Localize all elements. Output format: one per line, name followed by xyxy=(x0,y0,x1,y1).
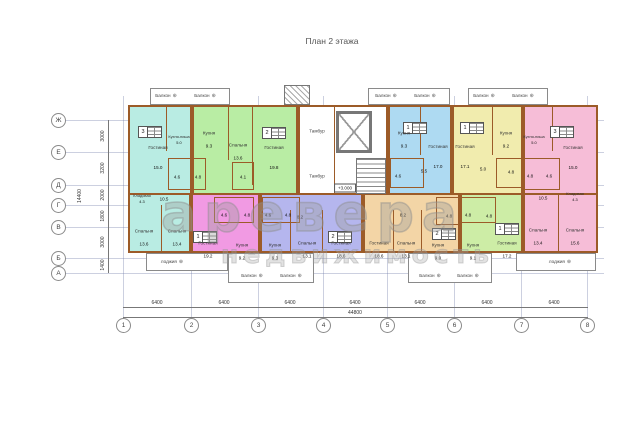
apartment-stamp: 3 xyxy=(550,126,574,138)
room-area: 9.3 xyxy=(401,144,407,149)
axis-number: 1 xyxy=(116,318,131,333)
room-area: 15.6 xyxy=(571,241,580,246)
room-area: 5.5 xyxy=(421,169,427,174)
stamp-number: 3 xyxy=(139,127,148,137)
balcony-text: Балкон xyxy=(155,93,170,98)
balcony-label: Балкон⊕ xyxy=(414,93,436,99)
balcony-mark-icon: ⊕ xyxy=(437,273,441,279)
loggia-label: лоджия⊕ xyxy=(549,259,571,265)
room-name: Гостиная xyxy=(264,146,283,151)
stamp-grid xyxy=(272,128,285,138)
room-label: Гостиная19.8 xyxy=(264,146,283,170)
left-dim: 1400 xyxy=(100,259,106,270)
axis-number: 7 xyxy=(514,318,529,333)
loggia-text: лоджия xyxy=(549,259,565,264)
span-dim: 6400 xyxy=(481,300,492,306)
stamp-grid xyxy=(470,123,483,133)
roof-shaft-hatch xyxy=(284,85,310,105)
room-label: Гостиная15.0 xyxy=(563,146,582,170)
room-area: 4.6 xyxy=(395,174,401,179)
axis-number: 8 xyxy=(580,318,595,333)
partition-wall xyxy=(334,105,335,195)
room-area: 4.6 xyxy=(174,175,180,180)
floor-plan-page: План 2 этажа Ж Е Д Г В Б А 1 2 3 4 5 6 7… xyxy=(0,0,622,440)
balcony-label: Балкон⊕ xyxy=(512,93,534,99)
room-area: 4.8 xyxy=(527,174,533,179)
room-area: 4.8 xyxy=(195,175,201,180)
stamp-number: 2 xyxy=(263,128,272,138)
balcony-text: Балкон xyxy=(241,273,256,278)
balcony-text: Балкон xyxy=(414,93,429,98)
partition-wall xyxy=(492,105,493,155)
span-dim: 6400 xyxy=(284,300,295,306)
loggia-label: лоджия⊕ xyxy=(161,259,183,265)
balcony-label: Балкон⊕ xyxy=(457,273,479,279)
balcony-mark-icon: ⊕ xyxy=(298,273,302,279)
room-label: Гостиная15.0 xyxy=(148,146,167,170)
span-dim: 6400 xyxy=(151,300,162,306)
dimension-line xyxy=(123,307,588,308)
axis-number: 5 xyxy=(380,318,395,333)
room-label: Кухня9.3 xyxy=(398,131,410,148)
axis-letter: Е xyxy=(51,145,66,160)
span-dim: 6400 xyxy=(414,300,425,306)
room-label: Спальня13.6 xyxy=(229,143,247,160)
room-area: 10.5 xyxy=(539,196,548,201)
room-name: Спальня xyxy=(529,228,547,233)
balcony-label: Балкон⊕ xyxy=(375,93,397,99)
room-area: 13.6 xyxy=(234,156,243,161)
watermark-line1: аревера xyxy=(98,184,528,244)
axis-letter: Ж xyxy=(51,113,66,128)
room-label: Спальня15.6 xyxy=(566,228,584,245)
room-label: Гостиная17.1 xyxy=(455,145,474,169)
axis-number: 2 xyxy=(184,318,199,333)
room-name: Спальня xyxy=(566,228,584,233)
balcony-mark-icon: ⊕ xyxy=(179,259,183,265)
room-area: 5.0 xyxy=(176,141,181,145)
axis-letter: Г xyxy=(51,198,66,213)
balcony-mark-icon: ⊕ xyxy=(491,93,495,99)
room-label: Гостиная17.0 xyxy=(428,145,447,169)
room-area: 4.8 xyxy=(508,170,514,175)
loggia-text: лоджия xyxy=(161,259,177,264)
stamp-grid xyxy=(560,127,573,137)
balcony-mark-icon: ⊕ xyxy=(567,259,571,265)
room-area: 9.2 xyxy=(503,144,509,149)
room-label: Кухня9.2 xyxy=(500,131,512,148)
balcony-mark-icon: ⊕ xyxy=(393,93,397,99)
balcony-label: Балкон⊕ xyxy=(419,273,441,279)
balcony-mark-icon: ⊕ xyxy=(432,93,436,99)
left-total-dim: 14400 xyxy=(77,189,83,203)
balcony-text: Балкон xyxy=(194,93,209,98)
span-dim: 6400 xyxy=(349,300,360,306)
room-name: Гостиная xyxy=(455,145,474,150)
span-dim: 6400 xyxy=(548,300,559,306)
room-area: 5.0 xyxy=(531,141,536,145)
balcony-text: Балкон xyxy=(280,273,295,278)
tambour-label: Тамбур xyxy=(309,129,325,134)
room-area: 17.1 xyxy=(461,165,470,170)
room-label: Кладовая4.3 xyxy=(566,192,583,202)
partition-wall xyxy=(558,195,559,253)
room-area: 15.0 xyxy=(154,166,163,171)
room-name: Кухня-ниша xyxy=(168,135,189,139)
room-label: Кухня9.3 xyxy=(203,131,215,148)
elevator-shaft xyxy=(336,111,372,153)
room-area: 13.4 xyxy=(534,241,543,246)
axis-letter: В xyxy=(51,220,66,235)
left-dim: 3200 xyxy=(100,162,106,173)
room-name: Кухня xyxy=(203,131,215,136)
room-area: 17.0 xyxy=(434,165,443,170)
balcony-text: Балкон xyxy=(512,93,527,98)
tambour-label: Тамбур xyxy=(309,174,325,179)
balcony-text: Балкон xyxy=(375,93,390,98)
stamp-number: 1 xyxy=(461,123,470,133)
balcony-label: Балкон⊕ xyxy=(280,273,302,279)
room-area: 4.6 xyxy=(546,174,552,179)
axis-number: 3 xyxy=(251,318,266,333)
room-label: Кухня-ниша5.0 xyxy=(523,135,544,145)
room-area: 4.1 xyxy=(240,175,246,180)
watermark-line2: недвижимость xyxy=(185,240,530,269)
page-title: План 2 этажа xyxy=(272,36,392,46)
room-area: 15.0 xyxy=(569,166,578,171)
room-name: Кухня-ниша xyxy=(523,135,544,139)
room-name: Гостиная xyxy=(148,146,167,151)
room-label: Спальня13.4 xyxy=(529,228,547,245)
total-dim: 44800 xyxy=(348,310,362,316)
balcony-text: Балкон xyxy=(457,273,472,278)
axis-letter: Б xyxy=(51,251,66,266)
axis-letter: А xyxy=(51,266,66,281)
balcony-text: Балкон xyxy=(473,93,488,98)
balcony-mark-icon: ⊕ xyxy=(173,93,177,99)
balcony-label: Балкон⊕ xyxy=(241,273,263,279)
room-area: 9.3 xyxy=(206,144,212,149)
room-name: Спальня xyxy=(229,143,247,148)
balcony-label: Балкон⊕ xyxy=(194,93,216,99)
balcony-label: Балкон⊕ xyxy=(155,93,177,99)
stamp-grid xyxy=(148,127,161,137)
room-name: Кухня xyxy=(500,131,512,136)
balcony-mark-icon: ⊕ xyxy=(475,273,479,279)
stamp-grid xyxy=(413,123,426,133)
room-label: Кухня-ниша5.0 xyxy=(168,135,189,145)
balcony-label: Балкон⊕ xyxy=(473,93,495,99)
room-name: Гостиная xyxy=(563,146,582,151)
apartment-stamp: 3 xyxy=(138,126,162,138)
balcony-text: Балкон xyxy=(419,273,434,278)
apartment-stamp: 2 xyxy=(262,127,286,139)
balcony-mark-icon: ⊕ xyxy=(530,93,534,99)
room-name: Кухня xyxy=(398,131,410,136)
left-dim: 3000 xyxy=(100,130,106,141)
grid-line-h xyxy=(52,273,604,274)
axis-number: 6 xyxy=(447,318,462,333)
axis-letter: Д xyxy=(51,178,66,193)
room-area: 4.3 xyxy=(572,198,577,202)
room-area: 19.8 xyxy=(270,166,279,171)
room-name: Кладовая xyxy=(566,192,583,196)
span-dim: 6400 xyxy=(218,300,229,306)
balcony-mark-icon: ⊕ xyxy=(212,93,216,99)
axis-number: 4 xyxy=(316,318,331,333)
apartment-stamp: 1 xyxy=(460,122,484,134)
balcony-mark-icon: ⊕ xyxy=(259,273,263,279)
room-name: Гостиная xyxy=(428,145,447,150)
stamp-number: 3 xyxy=(551,127,560,137)
room-area: 5.0 xyxy=(480,167,486,172)
